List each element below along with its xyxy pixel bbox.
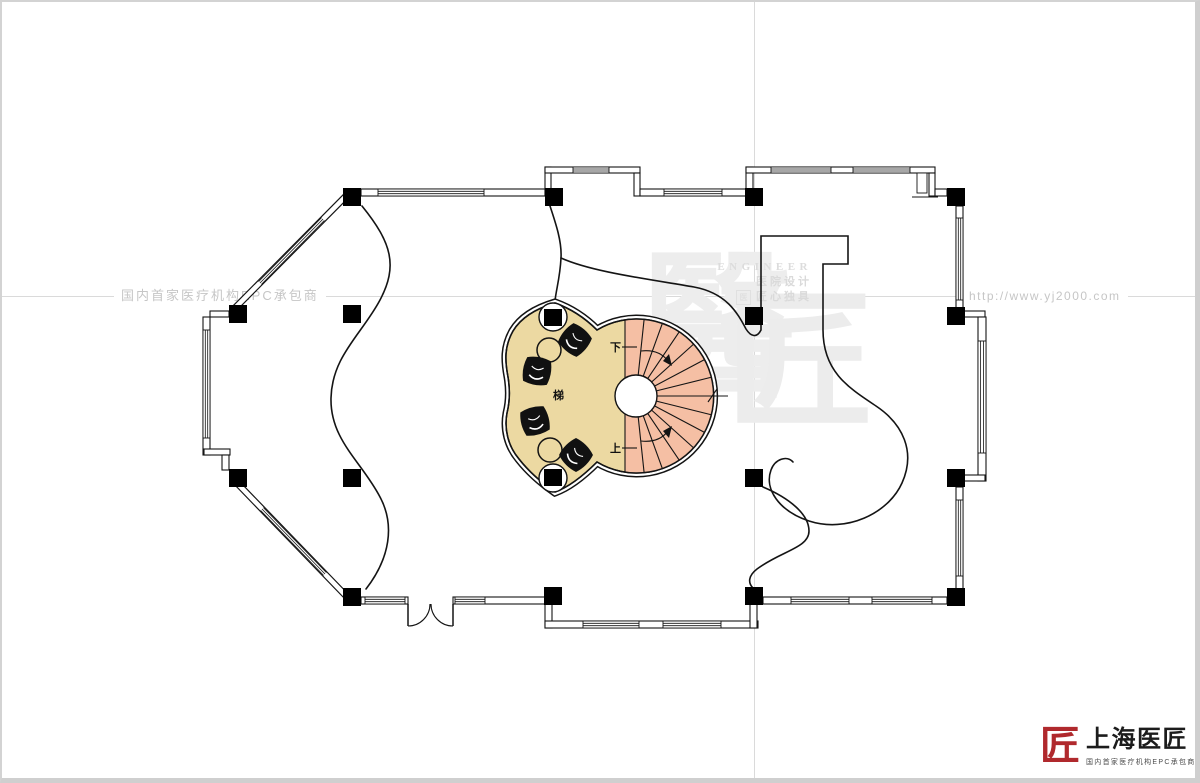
brand-seal-icon: 匠 xyxy=(1040,726,1078,766)
floorplan-canvas: 国内首家医疗机构EPC承包商 http://www.yj2000.com 醫 匠… xyxy=(0,0,1200,783)
label-stair-lobby: 梯 xyxy=(553,388,564,402)
diagonal-window-hatch xyxy=(259,218,327,576)
label-stair-down: 下 xyxy=(610,341,621,354)
brand-text: 上海医匠 国内首家医疗机构EPC承包商 xyxy=(1086,726,1196,767)
stair-core xyxy=(615,375,657,417)
brand-logo: 匠 上海医匠 国内首家医疗机构EPC承包商 xyxy=(1040,726,1196,767)
brand-subtitle: 国内首家医疗机构EPC承包商 xyxy=(1086,757,1196,767)
brand-title: 上海医匠 xyxy=(1086,726,1196,754)
label-stair-up: 上 xyxy=(610,441,621,455)
floorplan-drawing: 下 上 梯 xyxy=(0,0,1200,783)
entry-door xyxy=(408,604,453,626)
spiral-stair: 下 上 梯 xyxy=(506,303,728,492)
